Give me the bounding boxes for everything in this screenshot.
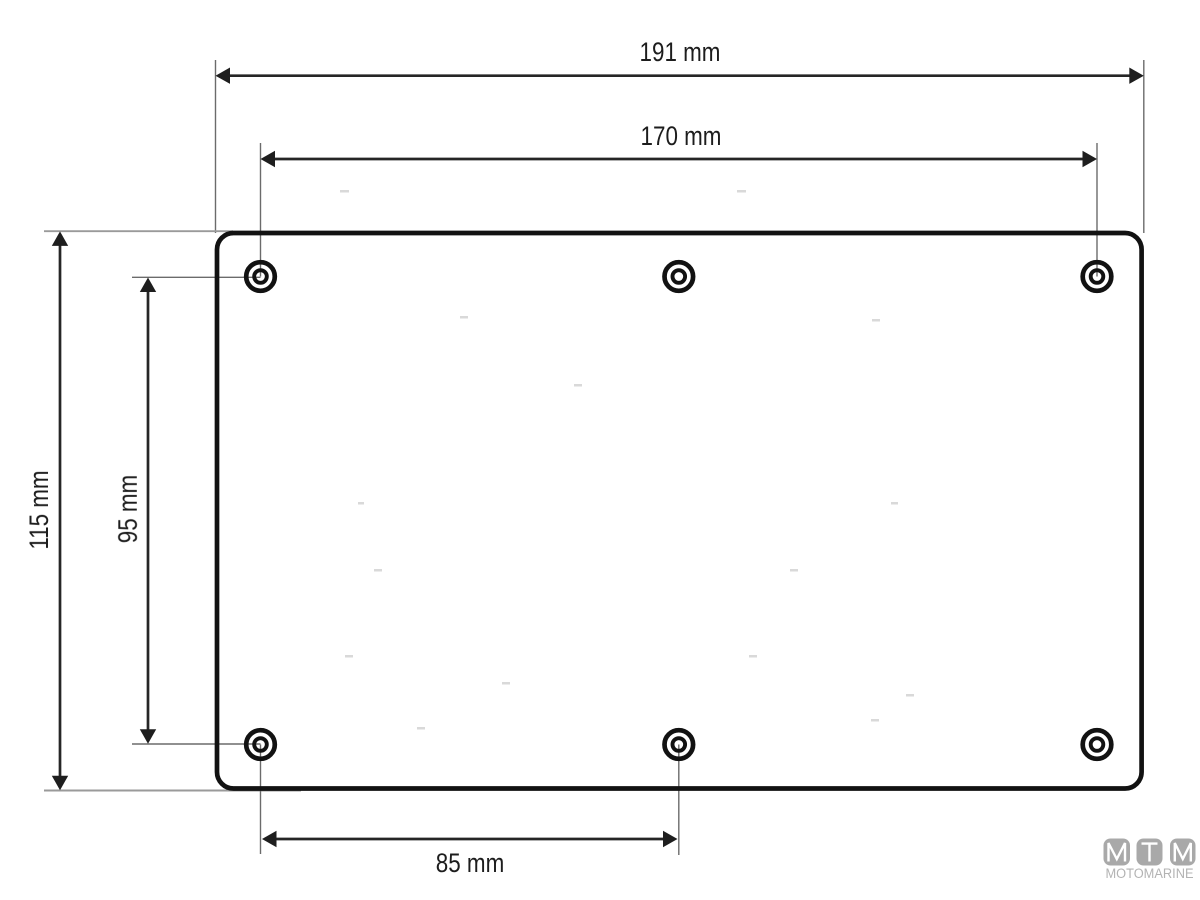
- svg-text:85 mm: 85 mm: [436, 849, 504, 878]
- svg-text:95 mm: 95 mm: [114, 475, 143, 543]
- svg-text:191 mm: 191 mm: [640, 38, 721, 67]
- svg-text:MOTOMARINE: MOTOMARINE: [1105, 865, 1193, 881]
- svg-text:170 mm: 170 mm: [641, 122, 722, 151]
- svg-text:115 mm: 115 mm: [25, 470, 54, 549]
